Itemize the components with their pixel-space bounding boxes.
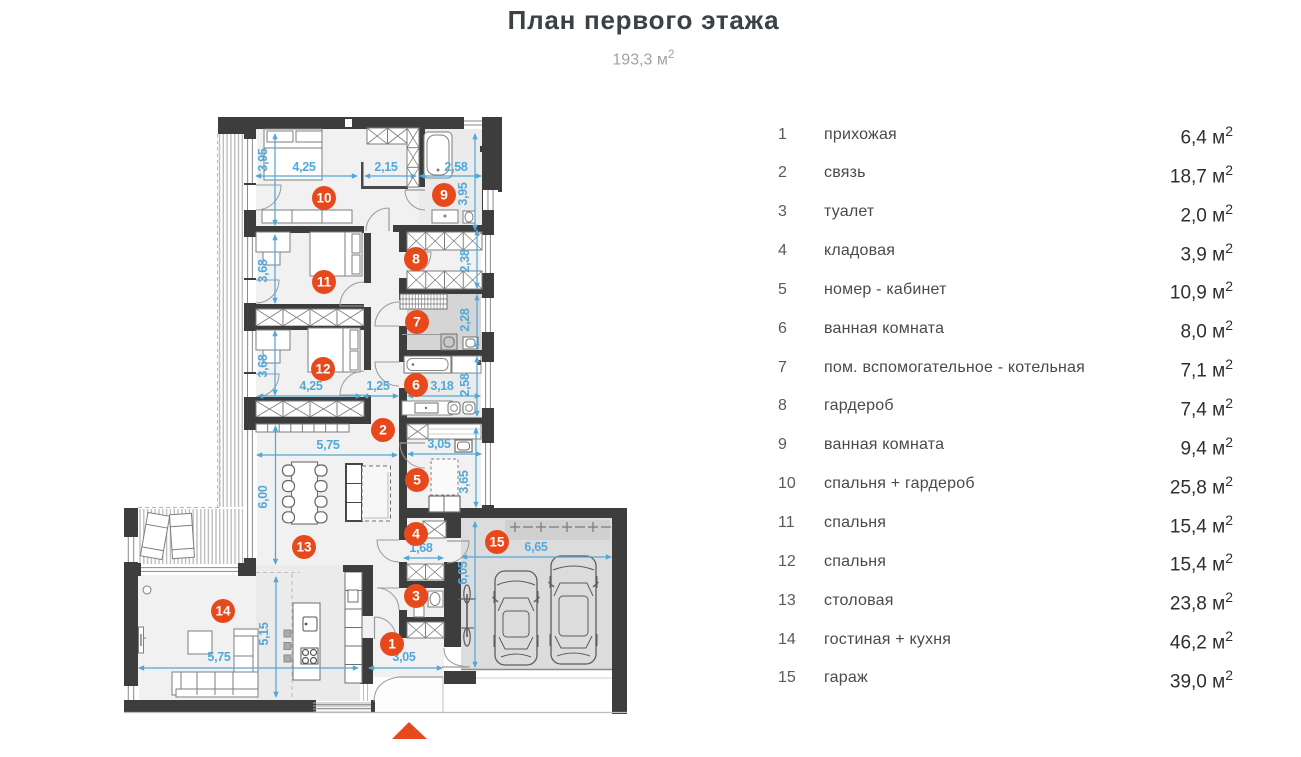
svg-text:3,95: 3,95 <box>456 182 470 205</box>
svg-text:2,15: 2,15 <box>374 160 397 174</box>
svg-text:2,58: 2,58 <box>458 373 472 396</box>
svg-text:3,68: 3,68 <box>256 259 270 282</box>
svg-text:6: 6 <box>412 377 420 393</box>
svg-text:8: 8 <box>412 251 420 267</box>
svg-text:5,15: 5,15 <box>257 622 271 645</box>
svg-text:4: 4 <box>412 526 420 542</box>
svg-text:14: 14 <box>215 604 231 619</box>
svg-text:5: 5 <box>413 472 421 488</box>
svg-text:6,65: 6,65 <box>524 540 547 554</box>
svg-text:2,58: 2,58 <box>444 160 467 174</box>
svg-text:12: 12 <box>315 362 330 377</box>
svg-text:6,05: 6,05 <box>456 561 470 584</box>
svg-text:13: 13 <box>296 540 312 555</box>
svg-text:15: 15 <box>489 535 505 550</box>
svg-text:9: 9 <box>440 187 448 203</box>
svg-text:3,95: 3,95 <box>256 148 270 171</box>
svg-text:3,68: 3,68 <box>256 354 270 377</box>
svg-text:10: 10 <box>316 191 331 206</box>
svg-text:2,38: 2,38 <box>458 249 472 272</box>
svg-text:3,65: 3,65 <box>457 470 471 493</box>
svg-text:6,00: 6,00 <box>256 485 270 508</box>
svg-text:3,18: 3,18 <box>430 379 453 393</box>
svg-text:4,25: 4,25 <box>292 160 315 174</box>
svg-text:5,75: 5,75 <box>316 438 339 452</box>
svg-text:4,25: 4,25 <box>299 379 322 393</box>
svg-text:11: 11 <box>317 275 332 290</box>
svg-text:3,05: 3,05 <box>427 437 450 451</box>
svg-text:5,75: 5,75 <box>207 650 230 664</box>
svg-text:3: 3 <box>412 588 420 604</box>
svg-text:2,28: 2,28 <box>458 308 472 331</box>
svg-text:7: 7 <box>413 314 421 330</box>
svg-text:1,25: 1,25 <box>366 379 389 393</box>
svg-text:1: 1 <box>388 636 396 652</box>
svg-text:2: 2 <box>379 422 387 438</box>
